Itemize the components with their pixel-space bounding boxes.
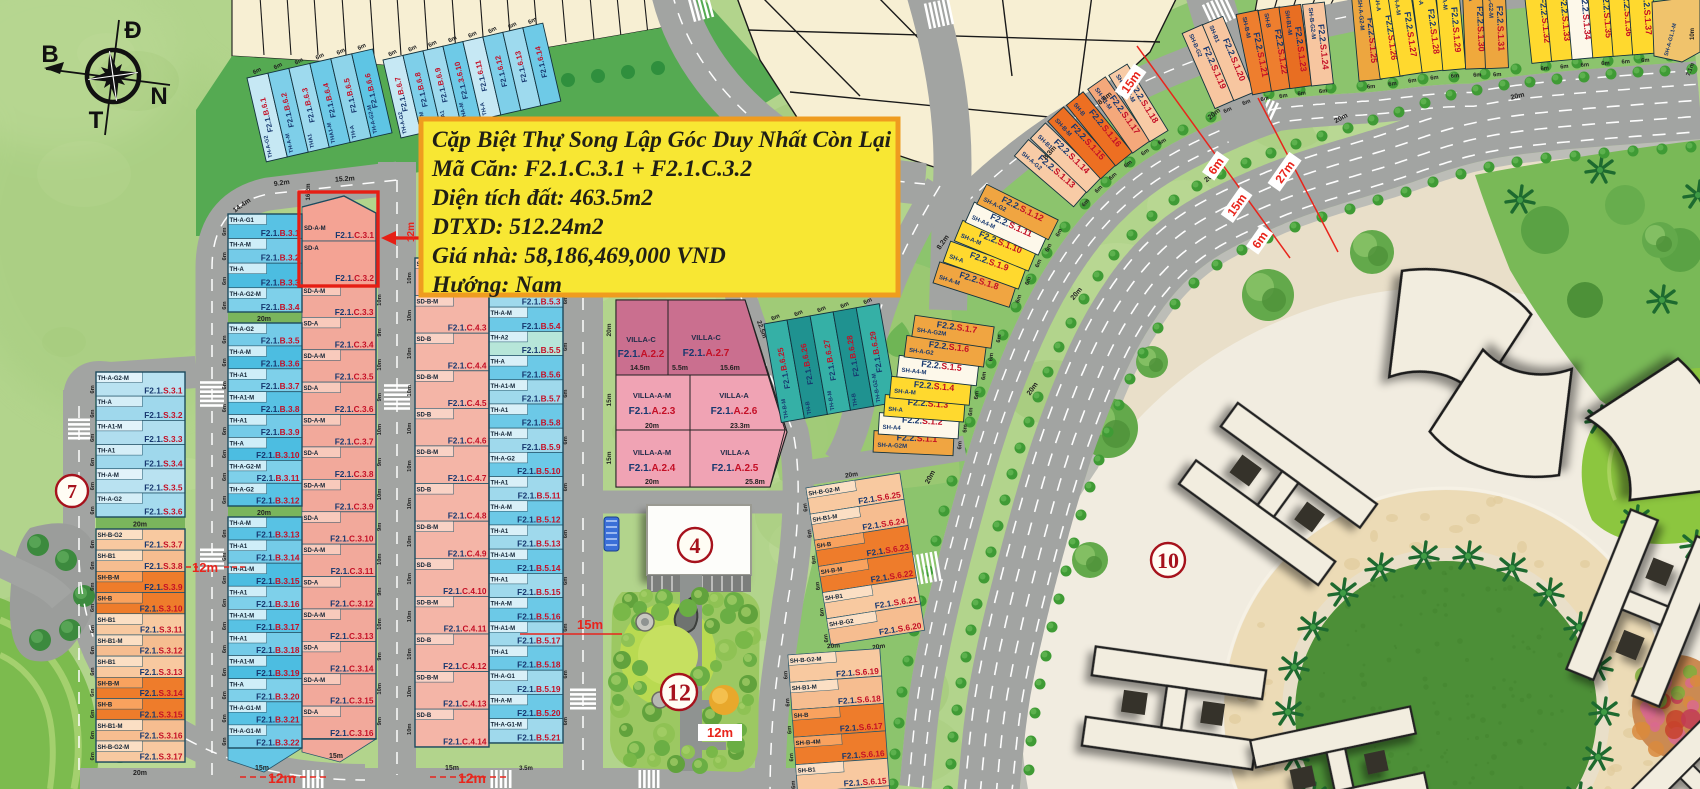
svg-text:VILLA-C: VILLA-C [626, 335, 656, 344]
svg-text:6m: 6m [783, 671, 790, 680]
svg-text:TH-A1: TH-A1 [491, 577, 509, 583]
svg-text:TH-A2: TH-A2 [491, 335, 509, 341]
svg-text:Cặp Biệt Thự Song Lập Góc Duy: Cặp Biệt Thự Song Lập Góc Duy Nhất Còn L… [432, 127, 892, 153]
svg-text:VILLA-A: VILLA-A [719, 391, 749, 400]
svg-text:F2.1.A.2.4: F2.1.A.2.4 [629, 463, 676, 474]
svg-text:10m: 10m [407, 310, 413, 322]
svg-text:6m: 6m [222, 228, 228, 236]
svg-text:6m: 6m [90, 482, 96, 490]
svg-text:T: T [89, 107, 104, 134]
svg-text:F2.1.B.5.21: F2.1.B.5.21 [517, 732, 561, 742]
svg-text:6m: 6m [1560, 64, 1569, 71]
svg-text:6m: 6m [222, 714, 228, 722]
svg-text:10m: 10m [377, 683, 383, 695]
svg-text:F2.1.B.5.13: F2.1.B.5.13 [517, 539, 561, 549]
svg-text:F2.1.S.3.15: F2.1.S.3.15 [140, 709, 183, 719]
svg-text:6m: 6m [1540, 66, 1549, 73]
svg-text:6m: 6m [563, 623, 569, 631]
svg-text:6m: 6m [222, 576, 228, 584]
svg-text:15m: 15m [329, 753, 343, 760]
svg-text:F2.1.B.3.9: F2.1.B.3.9 [261, 427, 300, 437]
svg-text:6m: 6m [811, 555, 818, 564]
svg-text:SD-A-M: SD-A-M [304, 419, 326, 425]
svg-text:6m: 6m [815, 581, 822, 590]
svg-text:F2.1.A.2.5: F2.1.A.2.5 [712, 463, 759, 474]
svg-text:6m: 6m [222, 427, 228, 435]
svg-text:12m: 12m [192, 560, 218, 575]
svg-text:TH-A1: TH-A1 [98, 449, 116, 455]
svg-text:9m: 9m [377, 587, 383, 595]
svg-text:20m: 20m [257, 510, 271, 517]
svg-text:6m: 6m [785, 698, 792, 707]
svg-text:10m: 10m [1690, 28, 1696, 40]
svg-text:F2.1.C.3.3: F2.1.C.3.3 [335, 307, 374, 317]
svg-text:9m: 9m [377, 523, 383, 531]
svg-text:6m: 6m [90, 646, 96, 654]
svg-text:10m: 10m [407, 573, 413, 585]
svg-text:6m: 6m [563, 577, 569, 585]
svg-text:F2.1.S.3.4: F2.1.S.3.4 [144, 458, 183, 468]
svg-text:F2.1.B.3.3: F2.1.B.3.3 [261, 277, 300, 287]
svg-text:6m: 6m [90, 689, 96, 697]
svg-text:6m: 6m [563, 483, 569, 491]
svg-text:SD-B-M: SD-B-M [417, 375, 439, 381]
svg-text:TH-A1-M: TH-A1-M [230, 567, 255, 573]
svg-text:15.2m: 15.2m [335, 175, 355, 183]
svg-text:DTXD: 512.24m2: DTXD: 512.24m2 [431, 214, 604, 240]
svg-text:F2.1.B.3.5: F2.1.B.3.5 [261, 335, 300, 345]
svg-text:TH-A1: TH-A1 [230, 419, 248, 425]
svg-text:TH-A1: TH-A1 [491, 529, 509, 535]
svg-text:F2.1.C.3.8: F2.1.C.3.8 [335, 469, 374, 479]
svg-text:SD-A-M: SD-A-M [304, 226, 326, 232]
svg-text:TH-A1: TH-A1 [230, 637, 248, 643]
svg-text:TH-A1: TH-A1 [491, 650, 509, 656]
svg-text:F2.1.C.4.8: F2.1.C.4.8 [448, 511, 487, 521]
svg-text:SD-A: SD-A [304, 321, 319, 327]
svg-text:F2.1.B.3.17: F2.1.B.3.17 [256, 622, 300, 632]
svg-text:F2.1.B.5.14: F2.1.B.5.14 [517, 563, 561, 573]
svg-text:6m: 6m [1319, 88, 1328, 95]
svg-text:F2.1.B.5.20: F2.1.B.5.20 [517, 708, 561, 718]
svg-text:F2.1.B.3.14: F2.1.B.3.14 [256, 553, 300, 563]
svg-text:6m: 6m [90, 752, 96, 760]
svg-text:6m: 6m [563, 670, 569, 678]
svg-text:SD-A: SD-A [304, 516, 319, 522]
svg-text:F2.1.B.5.17: F2.1.B.5.17 [517, 636, 561, 646]
svg-text:15m: 15m [577, 617, 603, 632]
svg-text:6m: 6m [90, 458, 96, 466]
svg-text:10m: 10m [377, 359, 383, 371]
svg-text:10m: 10m [377, 553, 383, 565]
svg-text:SH-B-M: SH-B-M [98, 575, 120, 581]
svg-text:F2.1.C.3.2: F2.1.C.3.2 [335, 273, 374, 283]
svg-text:SH-A4: SH-A4 [882, 425, 901, 432]
svg-text:10m: 10m [407, 686, 413, 698]
svg-text:20m: 20m [827, 642, 841, 650]
svg-text:6m: 6m [1430, 75, 1439, 82]
svg-text:F2.1.B.3.11: F2.1.B.3.11 [257, 473, 300, 483]
svg-text:SD-B: SD-B [417, 563, 432, 569]
svg-text:SD-B: SD-B [417, 713, 432, 719]
svg-text:6m: 6m [1408, 78, 1417, 85]
svg-text:SD-A: SD-A [304, 386, 319, 392]
svg-text:12m: 12m [458, 770, 486, 786]
svg-text:F2.1.C.3.9: F2.1.C.3.9 [335, 501, 374, 511]
svg-text:F2.1.S.3.6: F2.1.S.3.6 [144, 507, 183, 517]
svg-text:6m: 6m [222, 404, 228, 412]
svg-text:F2.1.B.5.9: F2.1.B.5.9 [522, 442, 561, 452]
svg-text:SH-B1-M: SH-B1-M [98, 639, 123, 645]
svg-text:F2.1.B.3.16: F2.1.B.3.16 [256, 599, 300, 609]
svg-text:F2.1.B.5.12: F2.1.B.5.12 [517, 515, 561, 525]
svg-text:F2.1.C.3.4: F2.1.C.3.4 [335, 339, 374, 349]
svg-text:F2.1.S.3.3: F2.1.S.3.3 [144, 434, 183, 444]
svg-text:SH-B1: SH-B1 [98, 618, 117, 624]
svg-text:F2.1.S.3.16: F2.1.S.3.16 [140, 731, 183, 741]
svg-text:F2.1.S.3.9: F2.1.S.3.9 [144, 582, 183, 592]
svg-text:F2.1.B.3.19: F2.1.B.3.19 [256, 668, 300, 678]
svg-text:15.6m: 15.6m [720, 365, 740, 372]
svg-text:10m: 10m [407, 723, 413, 735]
svg-text:TH-A1-M: TH-A1-M [230, 396, 255, 402]
svg-text:TH-A1-M: TH-A1-M [491, 384, 516, 390]
svg-text:F2.1.B.5.3: F2.1.B.5.3 [522, 297, 561, 307]
svg-text:6m: 6m [222, 668, 228, 676]
svg-text:F2.1.S.3.17: F2.1.S.3.17 [140, 752, 183, 762]
svg-text:6m: 6m [222, 496, 228, 504]
svg-text:F2.1.B.3.4: F2.1.B.3.4 [261, 302, 300, 312]
svg-text:6m: 6m [1580, 62, 1589, 69]
svg-text:VILLA-A-M: VILLA-A-M [633, 448, 671, 457]
svg-text:F2.1.B.3.20: F2.1.B.3.20 [256, 691, 300, 701]
svg-text:F2.1.C.3.13: F2.1.C.3.13 [330, 631, 374, 641]
svg-text:10m: 10m [407, 272, 413, 284]
svg-text:6m: 6m [222, 277, 228, 285]
svg-text:6m: 6m [90, 385, 96, 393]
svg-text:TH-A-M: TH-A-M [491, 311, 512, 317]
svg-text:6m: 6m [1493, 72, 1502, 78]
svg-text:6m: 6m [1601, 61, 1610, 68]
svg-text:TH-A1: TH-A1 [491, 408, 509, 414]
svg-text:TH-A-M: TH-A-M [98, 473, 119, 479]
svg-text:6m: 6m [563, 530, 569, 538]
svg-text:6m: 6m [90, 667, 96, 675]
svg-text:F2.1.S.3.5: F2.1.S.3.5 [144, 483, 183, 493]
svg-text:TH-A1: TH-A1 [230, 590, 248, 596]
svg-text:6m: 6m [222, 599, 228, 607]
svg-text:TH-A-G1: TH-A-G1 [230, 218, 255, 224]
svg-text:6m: 6m [981, 371, 988, 380]
svg-text:12: 12 [667, 681, 691, 707]
svg-text:12m: 12m [268, 770, 296, 786]
svg-text:SD-A-M: SD-A-M [304, 483, 326, 489]
svg-text:TH-A1: TH-A1 [230, 544, 248, 550]
svg-text:F2.1.C.3.10: F2.1.C.3.10 [330, 534, 374, 544]
svg-text:6m: 6m [222, 335, 228, 343]
svg-text:F2.1.C.4.9: F2.1.C.4.9 [448, 548, 487, 558]
svg-text:6m: 6m [222, 301, 228, 309]
svg-text:6m: 6m [222, 645, 228, 653]
svg-text:F2.1.B.5.4: F2.1.B.5.4 [522, 321, 561, 331]
svg-text:Giá nhà: 58,186,469,000 VND: Giá nhà: 58,186,469,000 VND [432, 243, 726, 269]
svg-text:F2.1.B.3.12: F2.1.B.3.12 [256, 496, 300, 506]
svg-text:F2.1.B.3.15: F2.1.B.3.15 [256, 576, 300, 586]
svg-text:F2.1.B.3.7: F2.1.B.3.7 [261, 381, 300, 391]
svg-text:F2.1.C.3.12: F2.1.C.3.12 [330, 599, 374, 609]
svg-text:15m: 15m [606, 393, 613, 406]
svg-text:F2.1.C.3.7: F2.1.C.3.7 [335, 437, 374, 447]
svg-text:15m: 15m [606, 451, 613, 464]
svg-text:F2.1.C.3.1: F2.1.C.3.1 [335, 230, 374, 240]
svg-text:6m: 6m [90, 604, 96, 612]
svg-text:F2.1.B.3.13: F2.1.B.3.13 [256, 530, 300, 540]
svg-text:SD-B-M: SD-B-M [417, 676, 439, 682]
svg-text:F2.1.B.5.8: F2.1.B.5.8 [522, 418, 561, 428]
svg-text:TH-A-M: TH-A-M [491, 505, 512, 511]
svg-text:SD-A-M: SD-A-M [304, 289, 326, 295]
svg-text:6m: 6m [787, 725, 794, 734]
svg-text:6m: 6m [222, 358, 228, 366]
svg-text:TH-A1: TH-A1 [491, 481, 509, 487]
svg-text:TH-A-M: TH-A-M [230, 243, 251, 249]
svg-text:TH-A-G1-M: TH-A-G1-M [230, 706, 261, 712]
svg-text:TH-A-G2: TH-A-G2 [98, 497, 123, 503]
svg-text:9m: 9m [377, 328, 383, 336]
svg-text:TH-A: TH-A [98, 400, 113, 406]
svg-text:6m: 6m [222, 450, 228, 458]
svg-text:SD-A-M: SD-A-M [304, 613, 326, 619]
svg-text:Mã Căn: F2.1.C.3.1 + F2.1.C.3.: Mã Căn: F2.1.C.3.1 + F2.1.C.3.2 [431, 156, 752, 182]
svg-text:SD-B-M: SD-B-M [417, 600, 439, 606]
svg-text:6m: 6m [90, 625, 96, 633]
svg-text:25.8m: 25.8m [745, 479, 765, 486]
svg-text:6m: 6m [974, 391, 981, 400]
svg-text:6m: 6m [222, 737, 228, 745]
svg-text:TH-A-M: TH-A-M [230, 350, 251, 356]
svg-text:9m: 9m [377, 458, 383, 466]
svg-text:TH-A-G1-M: TH-A-G1-M [230, 729, 261, 735]
svg-text:VILLA-C: VILLA-C [691, 333, 721, 342]
svg-text:F2.1.S.3.13: F2.1.S.3.13 [140, 667, 183, 677]
svg-text:10m: 10m [407, 611, 413, 623]
svg-text:Đ: Đ [124, 17, 141, 44]
svg-text:F2.1.C.3.14: F2.1.C.3.14 [330, 663, 374, 673]
svg-text:F2.1.A.2.6: F2.1.A.2.6 [711, 406, 758, 417]
svg-text:TH-A-G2-M: TH-A-G2-M [98, 376, 129, 382]
svg-text:SD-A: SD-A [304, 246, 319, 252]
svg-text:3.5m: 3.5m [519, 766, 533, 772]
svg-text:6m: 6m [1451, 73, 1460, 80]
svg-text:6m: 6m [1388, 81, 1397, 88]
svg-text:VILLA-A-M: VILLA-A-M [633, 391, 671, 400]
svg-text:TH-A-M: TH-A-M [230, 521, 251, 527]
svg-text:F2.1.S.3.8: F2.1.S.3.8 [144, 561, 183, 571]
svg-text:F2.1.C.4.3: F2.1.C.4.3 [448, 323, 487, 333]
svg-text:6m: 6m [222, 381, 228, 389]
svg-text:6m: 6m [563, 436, 569, 444]
svg-text:6m: 6m [996, 334, 1003, 343]
svg-text:10m: 10m [407, 423, 413, 435]
svg-text:7: 7 [67, 481, 77, 503]
svg-text:6m: 6m [90, 540, 96, 548]
svg-text:6m: 6m [563, 389, 569, 397]
svg-text:SD-B: SD-B [417, 488, 432, 494]
svg-text:12m: 12m [406, 222, 417, 242]
svg-text:6m: 6m [823, 634, 830, 643]
svg-text:20m: 20m [133, 522, 147, 529]
svg-text:F2.1.A.2.3: F2.1.A.2.3 [629, 406, 676, 417]
svg-text:10m: 10m [407, 535, 413, 547]
svg-text:F2.1.C.4.6: F2.1.C.4.6 [448, 436, 487, 446]
svg-text:SD-B-M: SD-B-M [417, 450, 439, 456]
svg-text:5.5m: 5.5m [672, 365, 688, 372]
svg-text:9m: 9m [377, 652, 383, 660]
svg-text:SH-B1: SH-B1 [98, 554, 117, 560]
svg-text:TH-A-G2-M: TH-A-G2-M [230, 464, 261, 470]
svg-text:Diện tích đất: 463.5m2: Diện tích đất: 463.5m2 [431, 185, 653, 211]
svg-text:F2.1.A.2.7: F2.1.A.2.7 [683, 348, 730, 359]
svg-text:F2.1.S.3.11: F2.1.S.3.11 [140, 625, 183, 635]
svg-text:10m: 10m [377, 489, 383, 501]
svg-text:6m: 6m [90, 561, 96, 569]
svg-text:6m: 6m [802, 503, 809, 512]
svg-text:TH-A1-M: TH-A1-M [230, 613, 255, 619]
svg-text:TH-A-M: TH-A-M [491, 698, 512, 704]
svg-text:TH-A: TH-A [230, 442, 245, 448]
svg-text:F2.1.S.3.1: F2.1.S.3.1 [144, 386, 183, 396]
svg-text:6m: 6m [1367, 84, 1376, 91]
svg-text:SH-B: SH-B [794, 713, 810, 720]
svg-text:6m: 6m [988, 353, 995, 362]
svg-text:TH-A-G1: TH-A-G1 [491, 674, 516, 680]
svg-text:TH-A-M: TH-A-M [491, 432, 512, 438]
svg-text:SD-B: SD-B [417, 412, 432, 418]
svg-text:F2.1.C.4.5: F2.1.C.4.5 [448, 398, 487, 408]
svg-text:6m: 6m [222, 252, 228, 260]
svg-text:SH-A: SH-A [888, 407, 904, 414]
svg-text:TH-A1-M: TH-A1-M [230, 660, 255, 666]
svg-text:F2.1.B.5.6: F2.1.B.5.6 [522, 369, 561, 379]
svg-text:6m: 6m [1621, 59, 1630, 66]
svg-text:10m: 10m [377, 294, 383, 306]
svg-text:TH-A: TH-A [491, 360, 506, 366]
svg-text:14.5m: 14.5m [630, 365, 650, 372]
svg-text:TH-A-G2-M: TH-A-G2-M [230, 292, 261, 298]
svg-text:6m: 6m [90, 710, 96, 718]
svg-text:20m: 20m [645, 479, 659, 486]
svg-text:F2.1.C.3.6: F2.1.C.3.6 [335, 404, 374, 414]
svg-text:6m: 6m [962, 424, 968, 433]
svg-text:F2.1.S.3.10: F2.1.S.3.10 [140, 603, 183, 613]
svg-text:F2.1.C.3.16: F2.1.C.3.16 [330, 728, 374, 738]
svg-text:6m: 6m [90, 434, 96, 442]
svg-text:TH-A-M: TH-A-M [491, 602, 512, 608]
svg-text:6m: 6m [222, 622, 228, 630]
svg-text:SD-A: SD-A [304, 645, 319, 651]
svg-text:F2.1.B.5.15: F2.1.B.5.15 [517, 587, 561, 597]
svg-text:10m: 10m [407, 460, 413, 472]
svg-text:SH-B-M: SH-B-M [98, 681, 120, 687]
svg-text:6m: 6m [222, 529, 228, 537]
svg-text:F2.1.B.5.19: F2.1.B.5.19 [517, 684, 561, 694]
svg-text:TH-A-G2: TH-A-G2 [230, 327, 255, 333]
svg-text:TH-A1-M: TH-A1-M [491, 626, 516, 632]
svg-text:9m: 9m [377, 393, 383, 401]
svg-text:12m: 12m [707, 725, 733, 740]
svg-text:F2.1.S.3.14: F2.1.S.3.14 [140, 688, 183, 698]
svg-text:6m: 6m [791, 780, 798, 789]
svg-text:20m: 20m [133, 770, 147, 777]
svg-text:6m: 6m [90, 409, 96, 417]
svg-text:SD-B-M: SD-B-M [417, 300, 439, 306]
svg-text:6m: 6m [1473, 72, 1482, 78]
svg-text:F2.1.B.3.10: F2.1.B.3.10 [256, 450, 300, 460]
svg-text:20m: 20m [645, 423, 659, 430]
svg-text:Hướng: Nam: Hướng: Nam [431, 272, 562, 298]
svg-text:F2.1.B.3.18: F2.1.B.3.18 [256, 645, 300, 655]
svg-text:F2.1.B.5.16: F2.1.B.5.16 [517, 611, 561, 621]
svg-text:15m: 15m [255, 765, 269, 772]
svg-text:SH-B-G2: SH-B-G2 [98, 533, 123, 539]
svg-text:6m: 6m [563, 343, 569, 351]
svg-text:15m: 15m [445, 765, 459, 772]
svg-text:6m: 6m [957, 441, 963, 450]
svg-text:6m: 6m [90, 731, 96, 739]
svg-text:F2.1.B.5.7: F2.1.B.5.7 [522, 394, 561, 404]
svg-text:F2.2.S.1.31: F2.2.S.1.31 [1495, 5, 1507, 51]
svg-text:10m: 10m [407, 498, 413, 510]
svg-text:6m: 6m [1641, 58, 1650, 65]
svg-text:F2.1.A.2.2: F2.1.A.2.2 [618, 349, 665, 360]
svg-text:F2.1.S.3.7: F2.1.S.3.7 [144, 540, 183, 550]
svg-text:SH-B: SH-B [98, 703, 113, 709]
svg-text:F2.1.B.3.2: F2.1.B.3.2 [261, 253, 300, 263]
svg-text:F2.1.B.3.21: F2.1.B.3.21 [256, 714, 300, 724]
svg-text:20m: 20m [606, 323, 613, 336]
svg-text:N: N [150, 83, 167, 110]
svg-text:F2.1.C.4.4: F2.1.C.4.4 [448, 360, 487, 370]
svg-text:SD-A: SD-A [304, 710, 319, 716]
svg-text:F2.1.S.3.2: F2.1.S.3.2 [144, 410, 183, 420]
svg-text:F2.1.C.4.14: F2.1.C.4.14 [443, 736, 487, 746]
svg-text:6m: 6m [90, 506, 96, 514]
svg-text:SD-A-M: SD-A-M [304, 678, 326, 684]
svg-text:TH-A1: TH-A1 [230, 373, 248, 379]
svg-text:TH-A-G2: TH-A-G2 [491, 456, 516, 462]
svg-text:6m: 6m [90, 583, 96, 591]
svg-text:F2.1.C.4.13: F2.1.C.4.13 [443, 699, 487, 709]
svg-text:F2.1.C.4.7: F2.1.C.4.7 [448, 473, 487, 483]
svg-text:6m: 6m [789, 753, 796, 762]
svg-text:TH-A: TH-A [230, 267, 245, 273]
svg-text:F2.1.B.5.10: F2.1.B.5.10 [517, 466, 561, 476]
svg-text:6m: 6m [563, 717, 569, 725]
svg-text:10m: 10m [377, 618, 383, 630]
svg-text:SD-A: SD-A [304, 451, 319, 457]
svg-text:SH-B1-M: SH-B1-M [98, 724, 123, 730]
svg-text:TH-A: TH-A [230, 683, 245, 689]
svg-text:6m: 6m [1297, 91, 1306, 98]
svg-text:SD-B-M: SD-B-M [417, 525, 439, 531]
svg-text:9m: 9m [377, 717, 383, 725]
svg-text:F2.1.B.3.22: F2.1.B.3.22 [256, 738, 300, 748]
svg-text:SD-B: SD-B [417, 638, 432, 644]
svg-text:F2.1.C.4.10: F2.1.C.4.10 [443, 586, 487, 596]
svg-text:TH-A-G1-M: TH-A-G1-M [491, 723, 522, 729]
svg-text:TH-A-G2: TH-A-G2 [230, 487, 255, 493]
svg-text:F2.1.B.5.11: F2.1.B.5.11 [518, 490, 561, 500]
